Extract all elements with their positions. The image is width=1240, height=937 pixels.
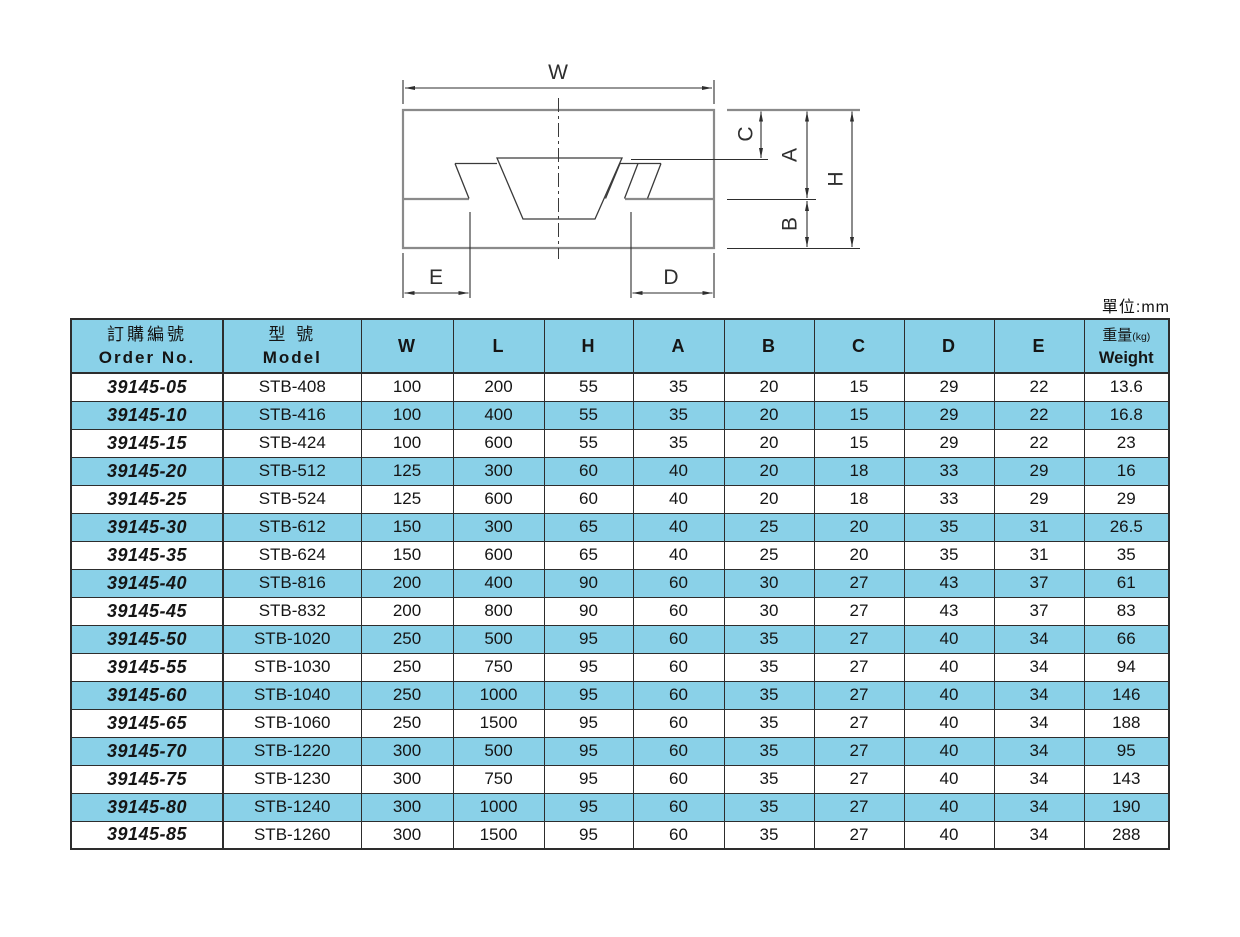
header-weight-en: Weight xyxy=(1085,348,1169,368)
value-cell-h: 90 xyxy=(544,597,633,625)
value-cell-l: 750 xyxy=(453,653,544,681)
value-cell-b: 35 xyxy=(724,709,814,737)
dim-label-a: A xyxy=(778,148,801,162)
value-cell-c: 27 xyxy=(814,653,904,681)
value-cell-b: 35 xyxy=(724,737,814,765)
value-cell-w: 300 xyxy=(361,765,453,793)
header-dim-l: L xyxy=(453,319,544,373)
header-dim-b: B xyxy=(724,319,814,373)
value-cell-w: 100 xyxy=(361,401,453,429)
value-cell-c: 27 xyxy=(814,625,904,653)
value-cell-l: 400 xyxy=(453,569,544,597)
value-cell-e: 31 xyxy=(994,541,1084,569)
model-cell: STB-1060 xyxy=(223,709,361,737)
value-cell-l: 1500 xyxy=(453,709,544,737)
header-row: 訂購編號 Order No. 型 號 Model W L H A B C D E… xyxy=(71,319,1169,373)
value-cell-h: 95 xyxy=(544,737,633,765)
model-cell: STB-1020 xyxy=(223,625,361,653)
value-cell-h: 95 xyxy=(544,681,633,709)
value-cell-w: 100 xyxy=(361,429,453,457)
value-cell-b: 35 xyxy=(724,653,814,681)
weight-cell: 95 xyxy=(1084,737,1169,765)
weight-cell: 13.6 xyxy=(1084,373,1169,401)
header-order-en: Order No. xyxy=(72,347,222,369)
weight-cell: 94 xyxy=(1084,653,1169,681)
table-row: 39145-80 STB-1240 300 1000 95 60 35 27 4… xyxy=(71,793,1169,821)
value-cell-a: 35 xyxy=(633,401,724,429)
value-cell-d: 40 xyxy=(904,737,994,765)
value-cell-e: 34 xyxy=(994,625,1084,653)
value-cell-a: 60 xyxy=(633,793,724,821)
extension-lines xyxy=(403,80,860,298)
value-cell-h: 55 xyxy=(544,429,633,457)
weight-cell: 188 xyxy=(1084,709,1169,737)
value-cell-c: 27 xyxy=(814,681,904,709)
table-row: 39145-45 STB-832 200 800 90 60 30 27 43 … xyxy=(71,597,1169,625)
value-cell-b: 35 xyxy=(724,765,814,793)
value-cell-w: 200 xyxy=(361,569,453,597)
value-cell-h: 95 xyxy=(544,793,633,821)
model-cell: STB-1220 xyxy=(223,737,361,765)
weight-cell: 190 xyxy=(1084,793,1169,821)
catalog-page: W E D C A B H 單位:mm 訂購編號 Order No. 型 xyxy=(0,0,1240,937)
value-cell-b: 20 xyxy=(724,485,814,513)
model-cell: STB-424 xyxy=(223,429,361,457)
value-cell-a: 40 xyxy=(633,457,724,485)
header-weight-zh: 重量(kg) xyxy=(1085,325,1169,348)
value-cell-c: 27 xyxy=(814,597,904,625)
value-cell-h: 60 xyxy=(544,485,633,513)
value-cell-l: 1000 xyxy=(453,793,544,821)
value-cell-d: 40 xyxy=(904,625,994,653)
model-cell: STB-408 xyxy=(223,373,361,401)
order-no-cell: 39145-35 xyxy=(71,541,223,569)
value-cell-d: 35 xyxy=(904,513,994,541)
header-order-no: 訂購編號 Order No. xyxy=(71,319,223,373)
model-cell: STB-1040 xyxy=(223,681,361,709)
value-cell-d: 43 xyxy=(904,569,994,597)
value-cell-e: 22 xyxy=(994,401,1084,429)
table-row: 39145-40 STB-816 200 400 90 60 30 27 43 … xyxy=(71,569,1169,597)
order-no-cell: 39145-05 xyxy=(71,373,223,401)
value-cell-b: 25 xyxy=(724,513,814,541)
header-weight-kg: (kg) xyxy=(1132,331,1150,343)
value-cell-d: 29 xyxy=(904,373,994,401)
weight-cell: 35 xyxy=(1084,541,1169,569)
table-row: 39145-05 STB-408 100 200 55 35 20 15 29 … xyxy=(71,373,1169,401)
weight-cell: 23 xyxy=(1084,429,1169,457)
value-cell-w: 200 xyxy=(361,597,453,625)
model-cell: STB-1240 xyxy=(223,793,361,821)
header-order-zh: 訂購編號 xyxy=(72,323,222,347)
order-no-cell: 39145-45 xyxy=(71,597,223,625)
value-cell-b: 35 xyxy=(724,821,814,849)
value-cell-l: 300 xyxy=(453,513,544,541)
value-cell-h: 60 xyxy=(544,457,633,485)
value-cell-e: 31 xyxy=(994,513,1084,541)
value-cell-c: 27 xyxy=(814,737,904,765)
value-cell-l: 1500 xyxy=(453,821,544,849)
value-cell-d: 29 xyxy=(904,401,994,429)
value-cell-d: 40 xyxy=(904,821,994,849)
value-cell-l: 400 xyxy=(453,401,544,429)
value-cell-e: 22 xyxy=(994,429,1084,457)
table-row: 39145-75 STB-1230 300 750 95 60 35 27 40… xyxy=(71,765,1169,793)
value-cell-a: 60 xyxy=(633,765,724,793)
value-cell-e: 34 xyxy=(994,765,1084,793)
order-no-cell: 39145-30 xyxy=(71,513,223,541)
value-cell-w: 125 xyxy=(361,485,453,513)
value-cell-b: 35 xyxy=(724,625,814,653)
value-cell-h: 55 xyxy=(544,373,633,401)
value-cell-h: 55 xyxy=(544,401,633,429)
order-no-cell: 39145-55 xyxy=(71,653,223,681)
value-cell-w: 250 xyxy=(361,709,453,737)
value-cell-d: 35 xyxy=(904,541,994,569)
weight-cell: 288 xyxy=(1084,821,1169,849)
value-cell-a: 60 xyxy=(633,569,724,597)
model-cell: STB-1260 xyxy=(223,821,361,849)
value-cell-b: 20 xyxy=(724,457,814,485)
value-cell-a: 60 xyxy=(633,625,724,653)
value-cell-d: 40 xyxy=(904,793,994,821)
weight-cell: 26.5 xyxy=(1084,513,1169,541)
value-cell-e: 22 xyxy=(994,373,1084,401)
value-cell-e: 34 xyxy=(994,709,1084,737)
value-cell-c: 20 xyxy=(814,513,904,541)
value-cell-b: 30 xyxy=(724,597,814,625)
header-dim-c: C xyxy=(814,319,904,373)
value-cell-a: 40 xyxy=(633,485,724,513)
weight-cell: 66 xyxy=(1084,625,1169,653)
value-cell-w: 250 xyxy=(361,625,453,653)
weight-cell: 146 xyxy=(1084,681,1169,709)
value-cell-h: 95 xyxy=(544,765,633,793)
value-cell-d: 33 xyxy=(904,457,994,485)
model-cell: STB-512 xyxy=(223,457,361,485)
value-cell-l: 300 xyxy=(453,457,544,485)
value-cell-e: 34 xyxy=(994,737,1084,765)
dim-label-d: D xyxy=(663,266,678,289)
table-row: 39145-30 STB-612 150 300 65 40 25 20 35 … xyxy=(71,513,1169,541)
value-cell-a: 60 xyxy=(633,821,724,849)
cross-section-diagram: W E D C A B H xyxy=(0,0,1240,320)
header-dim-d: D xyxy=(904,319,994,373)
table-row: 39145-10 STB-416 100 400 55 35 20 15 29 … xyxy=(71,401,1169,429)
value-cell-d: 40 xyxy=(904,765,994,793)
dim-label-e: E xyxy=(429,266,443,289)
value-cell-c: 15 xyxy=(814,373,904,401)
dim-label-c: C xyxy=(734,126,757,141)
value-cell-w: 300 xyxy=(361,821,453,849)
table-row: 39145-35 STB-624 150 600 65 40 25 20 35 … xyxy=(71,541,1169,569)
model-cell: STB-612 xyxy=(223,513,361,541)
value-cell-d: 40 xyxy=(904,653,994,681)
value-cell-h: 95 xyxy=(544,821,633,849)
value-cell-e: 37 xyxy=(994,569,1084,597)
value-cell-w: 100 xyxy=(361,373,453,401)
value-cell-e: 34 xyxy=(994,653,1084,681)
table-body: 39145-05 STB-408 100 200 55 35 20 15 29 … xyxy=(71,373,1169,849)
value-cell-c: 15 xyxy=(814,429,904,457)
table-row: 39145-15 STB-424 100 600 55 35 20 15 29 … xyxy=(71,429,1169,457)
value-cell-l: 1000 xyxy=(453,681,544,709)
value-cell-b: 20 xyxy=(724,401,814,429)
value-cell-b: 35 xyxy=(724,681,814,709)
value-cell-d: 33 xyxy=(904,485,994,513)
value-cell-a: 35 xyxy=(633,429,724,457)
value-cell-l: 750 xyxy=(453,765,544,793)
value-cell-h: 90 xyxy=(544,569,633,597)
value-cell-l: 500 xyxy=(453,737,544,765)
value-cell-a: 60 xyxy=(633,737,724,765)
value-cell-b: 20 xyxy=(724,373,814,401)
value-cell-w: 250 xyxy=(361,653,453,681)
order-no-cell: 39145-40 xyxy=(71,569,223,597)
order-no-cell: 39145-85 xyxy=(71,821,223,849)
table-row: 39145-55 STB-1030 250 750 95 60 35 27 40… xyxy=(71,653,1169,681)
value-cell-e: 34 xyxy=(994,681,1084,709)
value-cell-a: 35 xyxy=(633,373,724,401)
header-dim-h: H xyxy=(544,319,633,373)
value-cell-l: 600 xyxy=(453,541,544,569)
value-cell-c: 27 xyxy=(814,793,904,821)
order-no-cell: 39145-20 xyxy=(71,457,223,485)
table-row: 39145-85 STB-1260 300 1500 95 60 35 27 4… xyxy=(71,821,1169,849)
weight-cell: 16 xyxy=(1084,457,1169,485)
value-cell-b: 30 xyxy=(724,569,814,597)
value-cell-a: 60 xyxy=(633,653,724,681)
value-cell-a: 60 xyxy=(633,709,724,737)
value-cell-h: 95 xyxy=(544,653,633,681)
weight-cell: 29 xyxy=(1084,485,1169,513)
value-cell-d: 43 xyxy=(904,597,994,625)
model-cell: STB-1230 xyxy=(223,765,361,793)
dim-label-h: H xyxy=(824,171,847,186)
value-cell-h: 65 xyxy=(544,541,633,569)
value-cell-e: 29 xyxy=(994,457,1084,485)
value-cell-h: 95 xyxy=(544,709,633,737)
value-cell-d: 40 xyxy=(904,681,994,709)
value-cell-c: 20 xyxy=(814,541,904,569)
value-cell-c: 15 xyxy=(814,401,904,429)
order-no-cell: 39145-60 xyxy=(71,681,223,709)
value-cell-w: 250 xyxy=(361,681,453,709)
order-no-cell: 39145-50 xyxy=(71,625,223,653)
spec-table: 訂購編號 Order No. 型 號 Model W L H A B C D E… xyxy=(70,318,1170,850)
value-cell-l: 600 xyxy=(453,485,544,513)
order-no-cell: 39145-75 xyxy=(71,765,223,793)
value-cell-c: 27 xyxy=(814,709,904,737)
header-dim-a: A xyxy=(633,319,724,373)
value-cell-b: 35 xyxy=(724,793,814,821)
dim-label-w: W xyxy=(548,61,568,84)
value-cell-w: 150 xyxy=(361,541,453,569)
value-cell-a: 60 xyxy=(633,681,724,709)
value-cell-d: 40 xyxy=(904,709,994,737)
value-cell-a: 40 xyxy=(633,513,724,541)
weight-cell: 16.8 xyxy=(1084,401,1169,429)
model-cell: STB-624 xyxy=(223,541,361,569)
dim-label-b: B xyxy=(778,217,801,231)
table-row: 39145-20 STB-512 125 300 60 40 20 18 33 … xyxy=(71,457,1169,485)
model-cell: STB-832 xyxy=(223,597,361,625)
order-no-cell: 39145-65 xyxy=(71,709,223,737)
order-no-cell: 39145-25 xyxy=(71,485,223,513)
model-cell: STB-816 xyxy=(223,569,361,597)
value-cell-c: 18 xyxy=(814,457,904,485)
order-no-cell: 39145-10 xyxy=(71,401,223,429)
dimension-labels: W E D C A B H xyxy=(429,61,847,289)
table-row: 39145-50 STB-1020 250 500 95 60 35 27 40… xyxy=(71,625,1169,653)
table-row: 39145-60 STB-1040 250 1000 95 60 35 27 4… xyxy=(71,681,1169,709)
header-weight: 重量(kg) Weight xyxy=(1084,319,1169,373)
value-cell-w: 125 xyxy=(361,457,453,485)
header-model: 型 號 Model xyxy=(223,319,361,373)
model-cell: STB-1030 xyxy=(223,653,361,681)
value-cell-e: 37 xyxy=(994,597,1084,625)
value-cell-l: 800 xyxy=(453,597,544,625)
value-cell-e: 34 xyxy=(994,793,1084,821)
order-no-cell: 39145-15 xyxy=(71,429,223,457)
value-cell-c: 27 xyxy=(814,765,904,793)
header-model-zh: 型 號 xyxy=(224,323,361,347)
value-cell-w: 300 xyxy=(361,737,453,765)
weight-cell: 83 xyxy=(1084,597,1169,625)
header-dim-w: W xyxy=(361,319,453,373)
unit-note: 單位:mm xyxy=(1102,293,1170,317)
order-no-cell: 39145-70 xyxy=(71,737,223,765)
value-cell-a: 60 xyxy=(633,597,724,625)
header-dim-e: E xyxy=(994,319,1084,373)
table-row: 39145-25 STB-524 125 600 60 40 20 18 33 … xyxy=(71,485,1169,513)
order-no-cell: 39145-80 xyxy=(71,793,223,821)
value-cell-b: 25 xyxy=(724,541,814,569)
table-row: 39145-65 STB-1060 250 1500 95 60 35 27 4… xyxy=(71,709,1169,737)
value-cell-c: 27 xyxy=(814,569,904,597)
value-cell-c: 18 xyxy=(814,485,904,513)
value-cell-l: 200 xyxy=(453,373,544,401)
value-cell-w: 150 xyxy=(361,513,453,541)
header-model-en: Model xyxy=(224,347,361,369)
value-cell-l: 600 xyxy=(453,429,544,457)
value-cell-h: 95 xyxy=(544,625,633,653)
weight-cell: 61 xyxy=(1084,569,1169,597)
model-cell: STB-416 xyxy=(223,401,361,429)
value-cell-l: 500 xyxy=(453,625,544,653)
value-cell-a: 40 xyxy=(633,541,724,569)
value-cell-d: 29 xyxy=(904,429,994,457)
weight-cell: 143 xyxy=(1084,765,1169,793)
value-cell-b: 20 xyxy=(724,429,814,457)
value-cell-c: 27 xyxy=(814,821,904,849)
value-cell-e: 34 xyxy=(994,821,1084,849)
value-cell-w: 300 xyxy=(361,793,453,821)
table-row: 39145-70 STB-1220 300 500 95 60 35 27 40… xyxy=(71,737,1169,765)
value-cell-e: 29 xyxy=(994,485,1084,513)
model-cell: STB-524 xyxy=(223,485,361,513)
value-cell-h: 65 xyxy=(544,513,633,541)
